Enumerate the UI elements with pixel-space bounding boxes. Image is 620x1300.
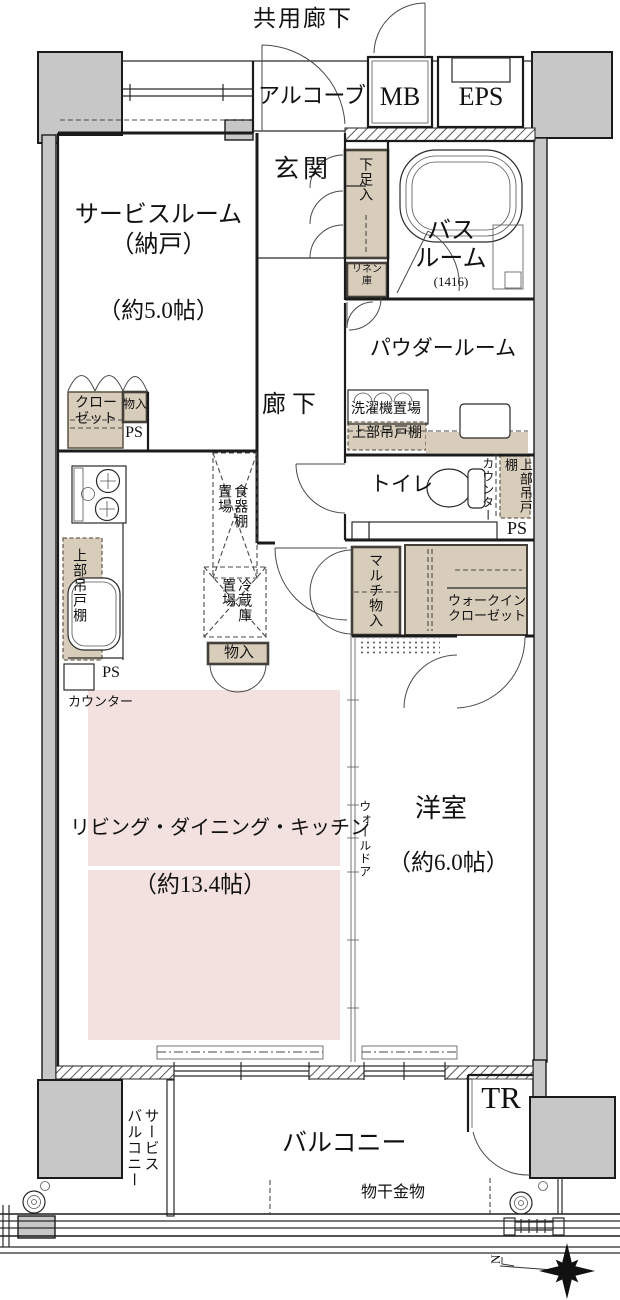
balcony-label: バルコニー [282,1130,406,1159]
floorplan: N 共用廊下 アルコーブ MB EPS サービスルーム （納戸） （約5.0帖）… [0,0,620,1300]
upper-cabinet-kitchen-label: 上部吊戸棚 [70,548,86,656]
entrance-label: 玄関 [268,156,338,185]
ps-kitchen-label: PS [96,664,126,682]
counter-kitchen-label: カウンター [68,695,132,710]
trunk-room-label: TR [472,1080,530,1116]
ldk-label: リビング・ダイニング・キッチン [70,817,354,840]
service-balcony-label: サービス バルコニー [124,1108,159,1220]
bathroom-label-line1: バス [414,218,488,246]
alcove-label: アルコーブ [254,83,370,108]
ps-toilet-label: PS [500,518,534,539]
eps-label: EPS [438,82,524,112]
service-room-size-label: （約5.0帖） [66,298,251,324]
service-room-label: サービスルーム [66,202,251,230]
upper-cabinet-toilet-label: 上部吊戸棚 [502,458,532,524]
mb-label: MB [372,82,428,112]
western-room-size-label: （約6.0帖） [388,850,504,876]
fridge-space-label: 冷蔵庫 置場 [219,578,251,636]
ldk-size-label: （約13.4帖） [122,872,278,898]
walk-in-closet-label: ウォークイン クローゼット [446,594,528,624]
shoe-cabinet-label: 下足入 [356,157,372,243]
powder-room-label: パウダールーム [352,336,534,360]
north-label: N [488,1254,503,1264]
compass-icon: N [488,1243,595,1299]
closet-label: クロー ゼット [70,396,122,428]
bathroom-label-line2: ルーム [402,246,500,274]
corridor-label: 廊下 [258,392,326,420]
ldk-floor [88,690,340,1040]
wall-door-label: ウォールドア [357,800,371,884]
toilet-label: トイレ [370,472,432,496]
western-room-label: 洋室 [406,794,476,824]
washer-space-label: 洗濯機置場 [347,402,425,418]
linen-label: リネン 庫 [347,264,387,287]
multi-storage-label: マルチ物入 [366,553,382,633]
bathroom-size-label: (1416) [414,275,488,290]
dish-shelf-label: 食器棚 置場 [215,484,247,570]
ps-closet-label: PS [120,424,148,442]
laundry-hardware-label: 物干金物 [354,1184,432,1202]
service-room-alt-label: （納戸） [66,232,251,260]
storage-small-closet-label: 物入 [123,398,147,412]
storage-small-kitchen-label: 物入 [220,645,258,662]
shared-corridor-label: 共用廊下 [248,6,358,32]
counter-toilet-label: カウンター [480,457,494,531]
upper-cabinet-powder-label: 上部吊戸棚 [348,426,426,442]
